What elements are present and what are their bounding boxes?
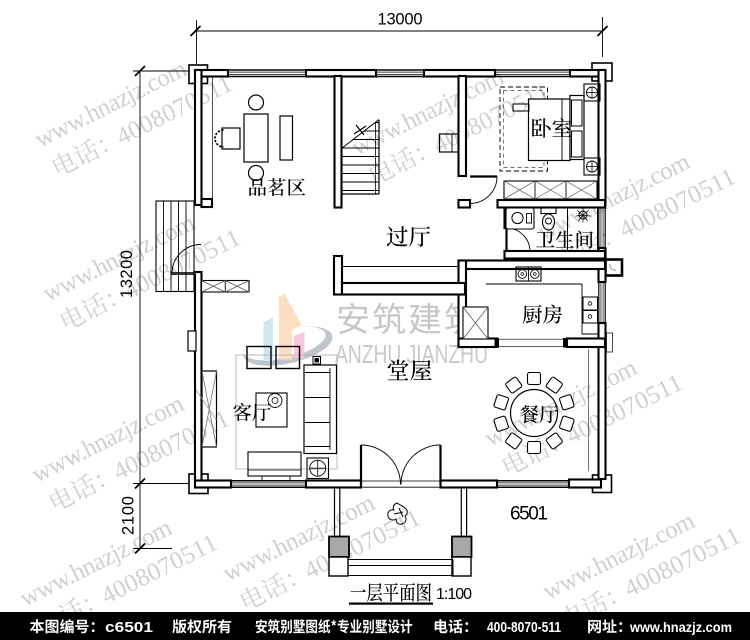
svg-text:c6501: c6501	[105, 619, 153, 636]
svg-text:1:100: 1:100	[436, 586, 472, 603]
svg-text:2100: 2100	[120, 496, 138, 535]
svg-text:13200: 13200	[118, 250, 136, 298]
svg-text:www.hnazjz.com: www.hnazjz.com	[629, 619, 732, 635]
svg-text:6501: 6501	[510, 504, 548, 525]
svg-text:13000: 13000	[378, 11, 423, 29]
svg-text:400-8070-511: 400-8070-511	[487, 619, 561, 636]
